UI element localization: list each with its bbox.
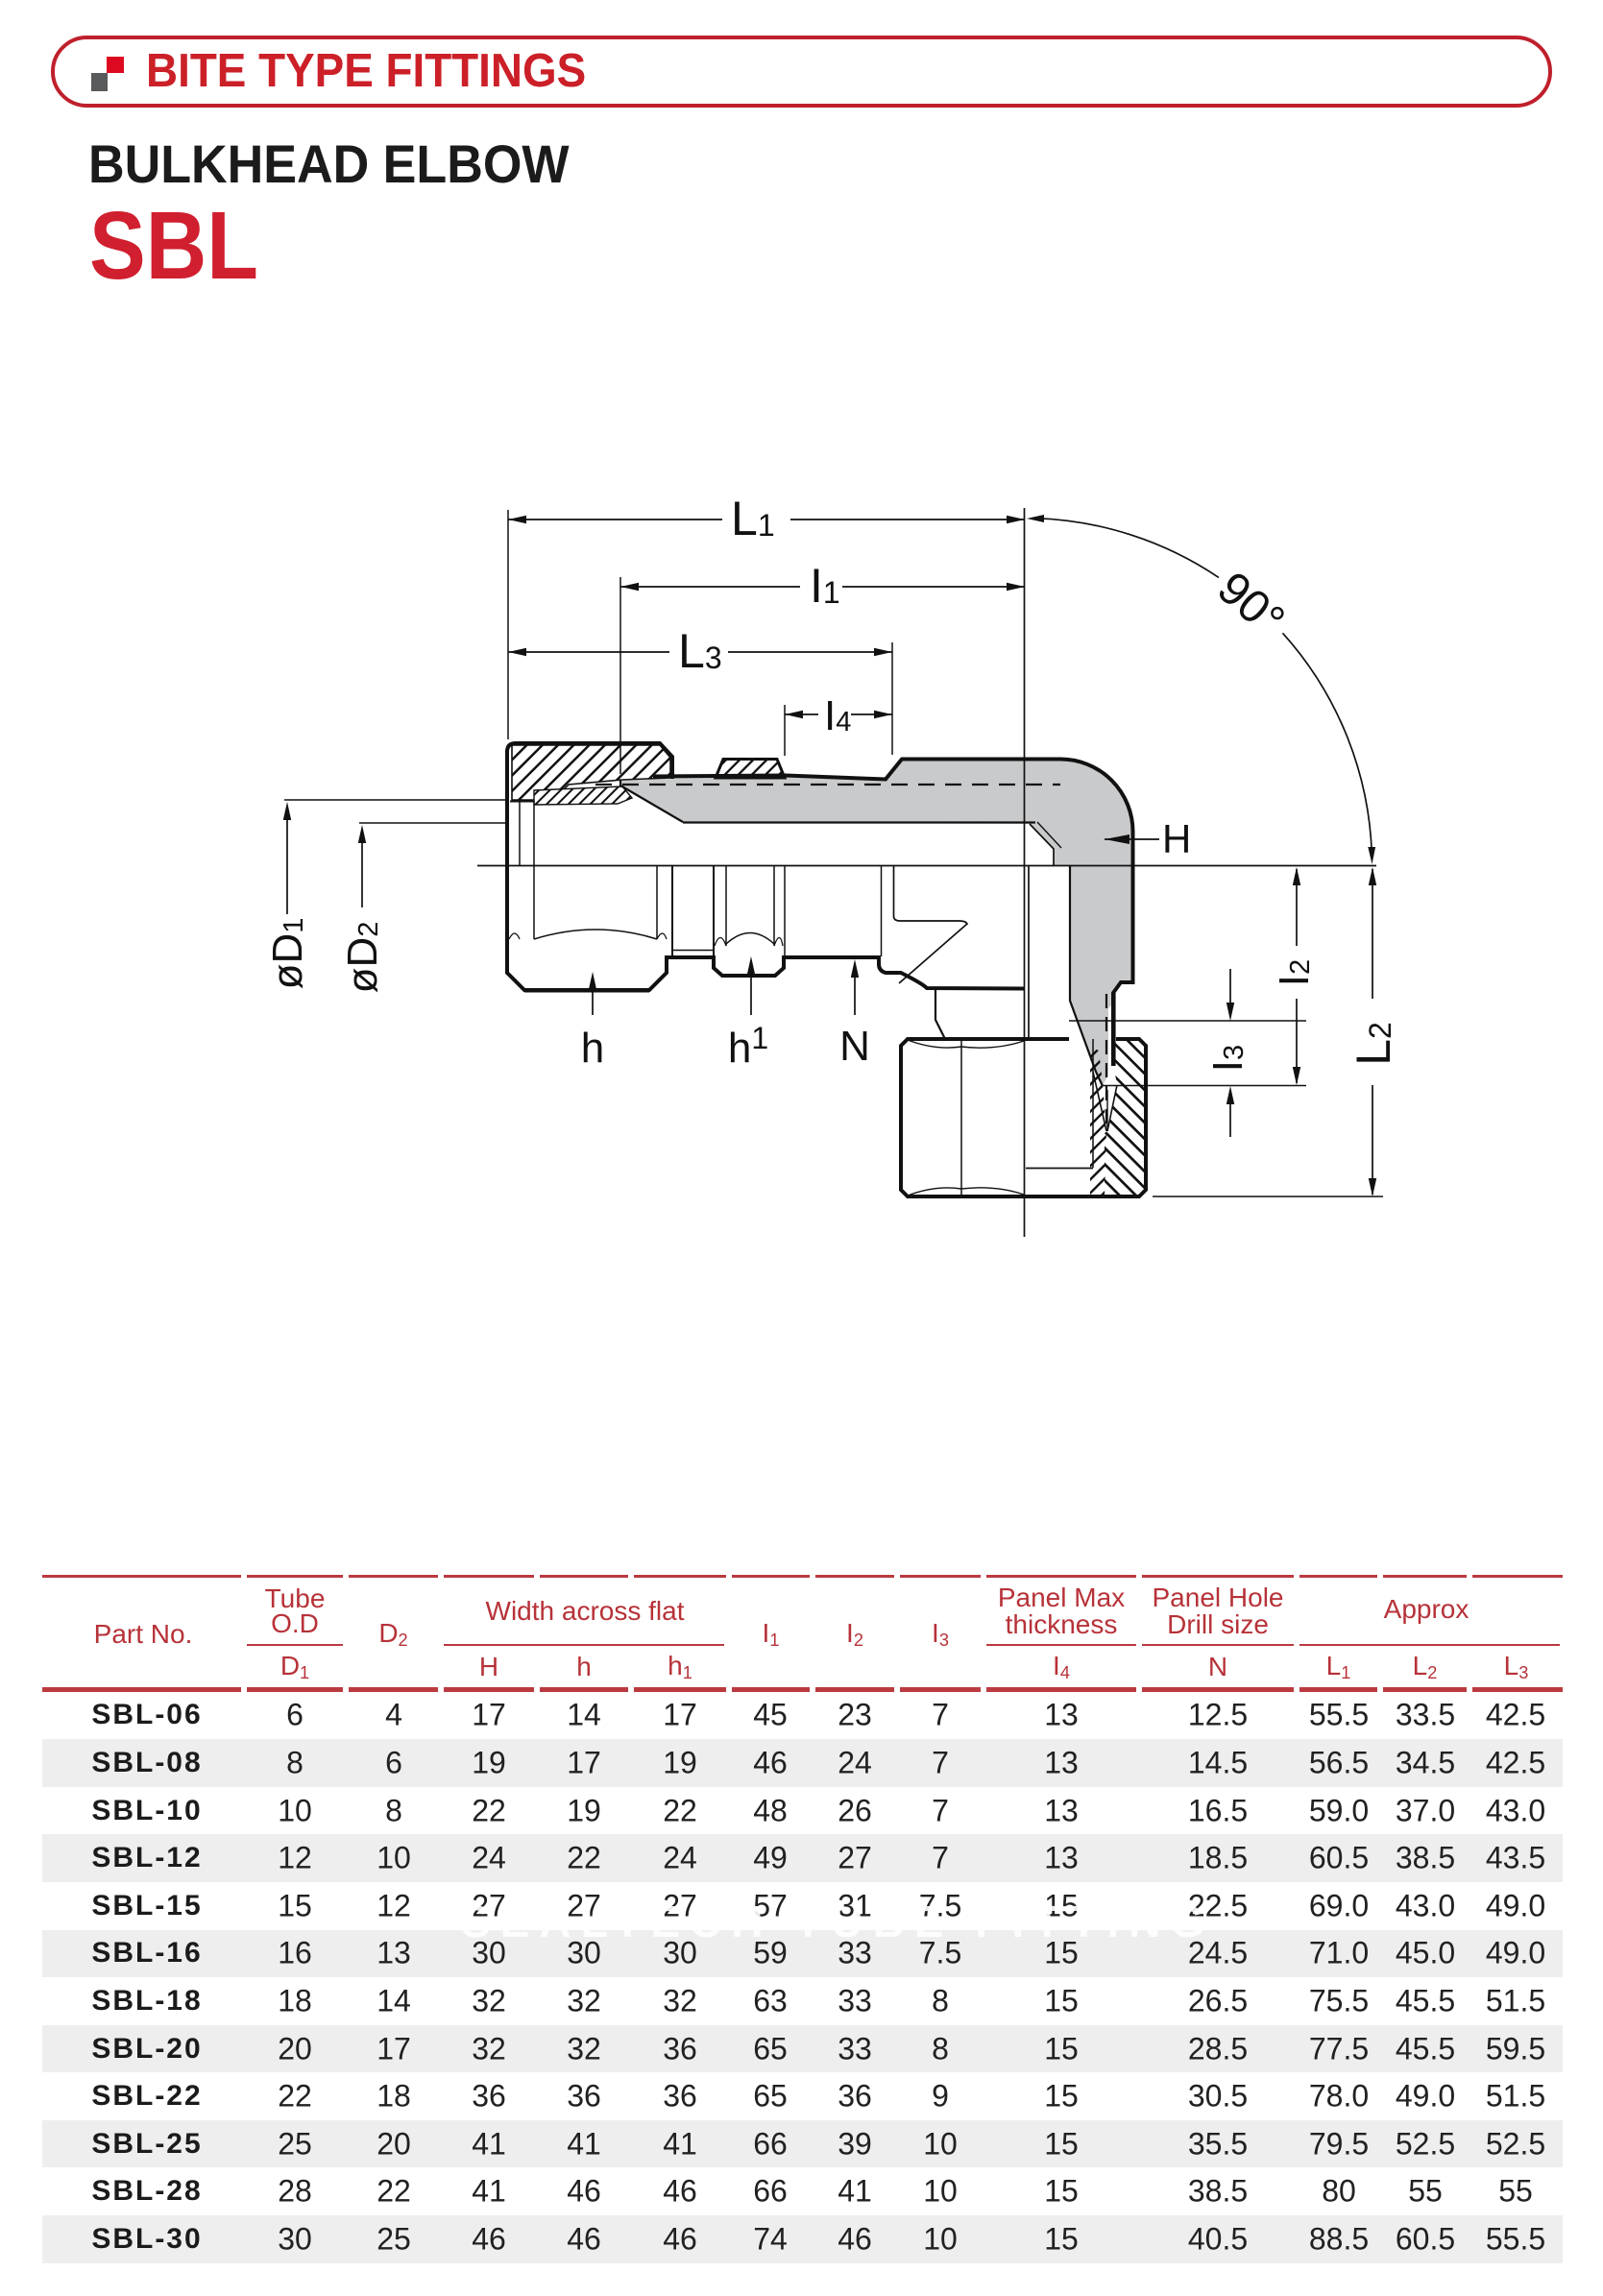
svg-text:L3: L3 — [678, 624, 722, 678]
svg-text:H: H — [1162, 816, 1191, 861]
svg-text:I4: I4 — [824, 692, 851, 739]
svg-text:I1: I1 — [810, 559, 840, 613]
svg-text:øD2: øD2 — [339, 922, 386, 994]
svg-text:I2: I2 — [1271, 959, 1318, 986]
svg-text:I3: I3 — [1204, 1045, 1251, 1072]
svg-text:h1: h1 — [728, 1021, 768, 1072]
svg-text:L2: L2 — [1347, 1022, 1400, 1066]
svg-text:øD1: øD1 — [264, 918, 311, 990]
svg-text:90°: 90° — [1208, 563, 1295, 647]
svg-text:h: h — [581, 1025, 604, 1072]
svg-text:N: N — [839, 1023, 870, 1070]
svg-text:L1: L1 — [731, 492, 775, 545]
